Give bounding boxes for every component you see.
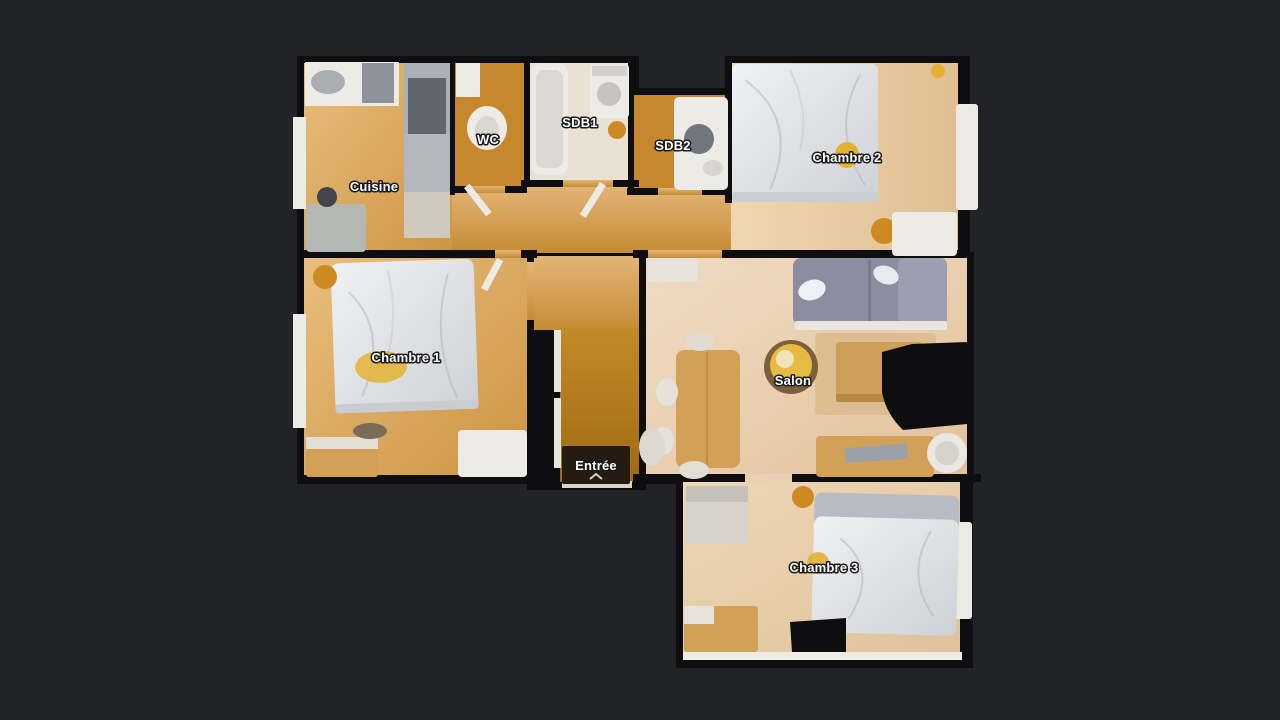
- sdb1-washer-panel: [592, 66, 627, 76]
- room-label-chambre3[interactable]: Chambre 3: [790, 560, 859, 575]
- chambre1-cabinet: [458, 430, 527, 477]
- sdb1-stool: [608, 121, 626, 139]
- sdb1-washer-door: [597, 82, 621, 106]
- door-opening-chambre1-side: [527, 262, 534, 320]
- room-label-entree[interactable]: Entrée: [575, 458, 617, 473]
- chambre3-bed: [811, 516, 959, 636]
- radiator-chambre2: [956, 104, 978, 210]
- hallway-floor[interactable]: [446, 185, 731, 253]
- salon-sofa-chaise: [898, 258, 947, 325]
- kitchen-cabinet-mid: [404, 134, 450, 194]
- salon-side-chair: [639, 428, 665, 466]
- kitchen-sink: [311, 70, 345, 94]
- wc-sink: [456, 63, 480, 97]
- salon-wall-ledge: [795, 321, 947, 330]
- room-label-sdb2[interactable]: SDB2: [655, 138, 690, 153]
- chambre1-dark-item: [353, 423, 387, 439]
- room-label-salon[interactable]: Salon: [775, 373, 811, 388]
- dining-chair: [679, 461, 709, 479]
- kitchen-stove-top: [408, 78, 446, 134]
- chambre2-desk: [892, 212, 957, 256]
- wall-cuisine-wc: [450, 63, 455, 195]
- chambre1-nightstand: [313, 265, 337, 289]
- room-label-cuisine[interactable]: Cuisine: [350, 179, 398, 194]
- scan-hole-salon: [882, 342, 967, 430]
- door-frame-entree-b: [554, 398, 561, 468]
- wall-chambre3-left: [676, 474, 683, 668]
- chambre1-bed: [330, 259, 478, 414]
- sdb1-bathtub-inner: [536, 70, 563, 168]
- room-label-chambre2[interactable]: Chambre 2: [813, 150, 882, 165]
- floorplan-stage: Cuisine WC SDB1 SDB2 Chambre 2 Chambre 1…: [0, 0, 1280, 720]
- chambre3-desk-white: [684, 606, 714, 624]
- door-frame-entree-a: [554, 330, 561, 392]
- kitchen-cabinet-low: [404, 192, 450, 238]
- window-cuisine: [293, 117, 306, 209]
- kitchen-dishwasher: [362, 63, 394, 103]
- dining-chair: [686, 333, 714, 351]
- sdb2-sink: [703, 160, 723, 176]
- dining-chair: [656, 378, 678, 406]
- salon-sideboard: [648, 258, 698, 282]
- chambre3-wardrobe-top: [686, 486, 748, 502]
- chambre2-bed-end: [732, 192, 878, 202]
- floorplan-canvas[interactable]: Cuisine WC SDB1 SDB2 Chambre 2 Chambre 1…: [0, 0, 1280, 720]
- dining-table-seam: [706, 352, 708, 466]
- kitchen-mat: [306, 204, 366, 252]
- chambre1-bed-group: [330, 259, 478, 414]
- door-opening-hall-salon: [648, 250, 722, 258]
- salon-desk-chair-seat: [935, 441, 959, 465]
- salon-sofa-seam: [868, 260, 871, 323]
- chambre3-nightstand: [792, 486, 814, 508]
- window-chambre1: [293, 314, 306, 428]
- corridor-floor[interactable]: [534, 256, 639, 330]
- salon-round-table-highlight: [776, 350, 794, 368]
- wall-chambre3-bottom-lit: [683, 652, 962, 660]
- door-opening-chambre3: [745, 474, 792, 482]
- kitchen-bin: [317, 187, 337, 207]
- room-label-chambre1[interactable]: Chambre 1: [372, 350, 441, 365]
- room-label-sdb1[interactable]: SDB1: [562, 115, 597, 130]
- scan-hole-chambre3: [790, 618, 846, 652]
- door-opening-chambre1: [495, 250, 521, 258]
- chambre2-deco-small: [931, 64, 945, 78]
- room-label-wc[interactable]: WC: [477, 132, 499, 147]
